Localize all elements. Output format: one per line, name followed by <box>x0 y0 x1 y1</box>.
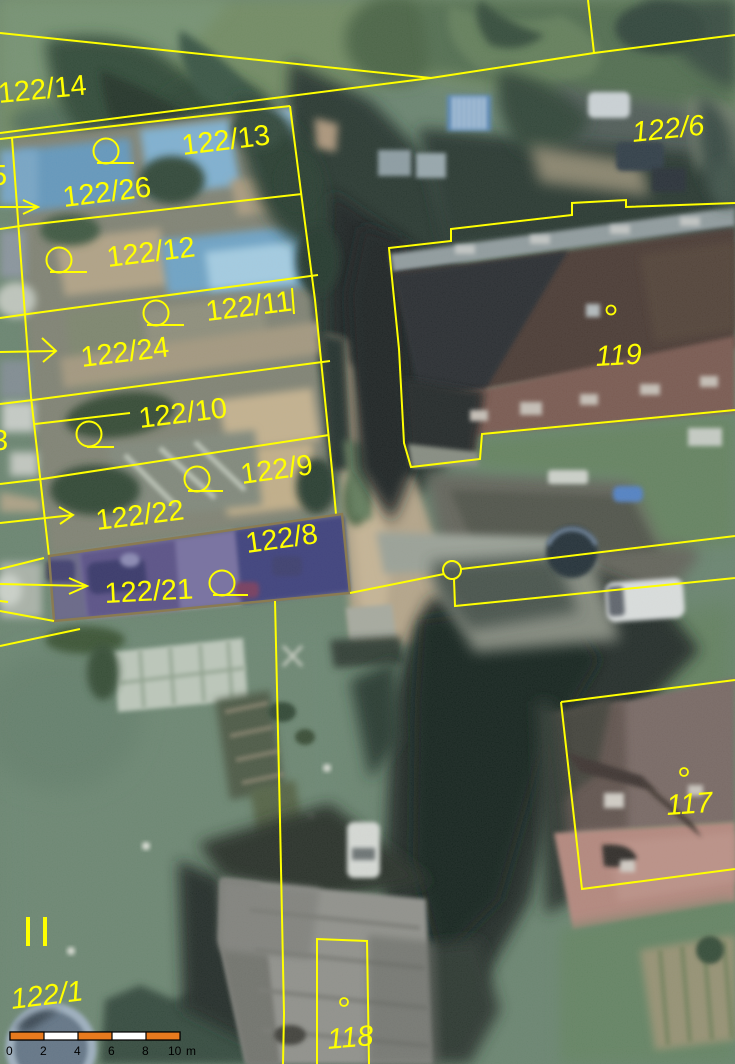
svg-text:0: 0 <box>6 1044 13 1058</box>
svg-text:10: 10 <box>168 1044 182 1058</box>
svg-text:6: 6 <box>108 1044 115 1058</box>
svg-text:m: m <box>186 1044 196 1058</box>
svg-text:2: 2 <box>40 1044 47 1058</box>
svg-text:4: 4 <box>74 1044 81 1058</box>
svg-text:119: 119 <box>595 339 643 373</box>
svg-text:117: 117 <box>665 787 715 822</box>
svg-text:8: 8 <box>142 1044 149 1058</box>
svg-text:122/21: 122/21 <box>104 573 194 610</box>
svg-text:118: 118 <box>326 1020 375 1056</box>
svg-text:5: 5 <box>0 160 7 192</box>
svg-text:3: 3 <box>0 425 8 457</box>
